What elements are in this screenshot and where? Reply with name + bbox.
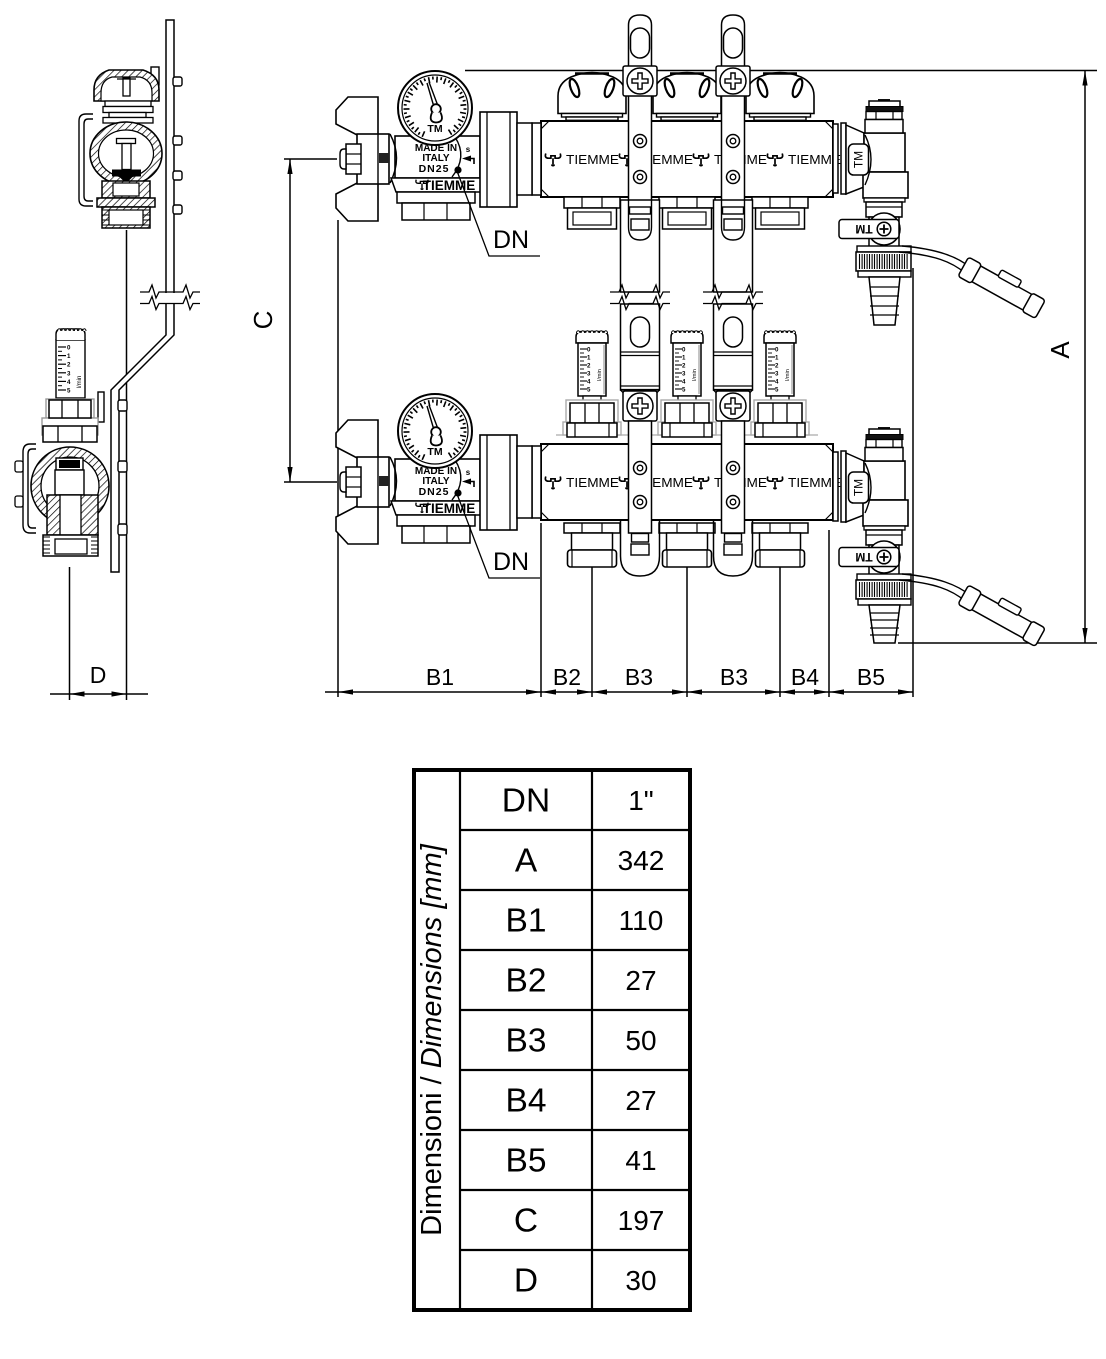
svg-text:4: 4 <box>67 379 71 386</box>
svg-text:0: 0 <box>67 345 71 352</box>
svg-text:Dimensioni / Dimensions [mm]: Dimensioni / Dimensions [mm] <box>416 843 448 1236</box>
svg-text:2: 2 <box>67 362 71 369</box>
svg-text:l/min: l/min <box>785 369 791 381</box>
svg-text:B2: B2 <box>506 963 547 1000</box>
svg-text:DN: DN <box>493 548 529 576</box>
svg-text:TM: TM <box>855 550 872 564</box>
svg-text:TIEMME: TIEMME <box>423 501 476 516</box>
svg-text:l/min: l/min <box>597 369 603 381</box>
svg-text:TM: TM <box>852 479 866 496</box>
svg-text:0: 0 <box>682 347 686 354</box>
svg-text:4: 4 <box>775 379 779 386</box>
svg-text:l/min: l/min <box>692 369 698 381</box>
svg-text:1": 1" <box>628 785 654 816</box>
svg-text:TIEMME: TIEMME <box>423 178 476 193</box>
svg-text:3: 3 <box>67 370 71 377</box>
svg-text:342: 342 <box>618 845 665 876</box>
svg-text:5: 5 <box>67 388 71 395</box>
svg-text:5: 5 <box>587 387 591 394</box>
svg-text:B5: B5 <box>857 664 885 690</box>
svg-text:1: 1 <box>587 355 591 362</box>
svg-text:TM: TM <box>427 123 442 135</box>
svg-text:0: 0 <box>587 347 591 354</box>
svg-text:2: 2 <box>682 363 686 370</box>
svg-text:110: 110 <box>619 905 664 936</box>
svg-text:1: 1 <box>775 355 779 362</box>
svg-text:1: 1 <box>682 355 686 362</box>
svg-text:TM: TM <box>855 222 872 236</box>
svg-text:41: 41 <box>625 1145 656 1176</box>
svg-text:B1: B1 <box>506 903 547 940</box>
svg-text:DN: DN <box>493 226 529 254</box>
svg-text:B2: B2 <box>553 664 581 690</box>
svg-text:3: 3 <box>682 371 686 378</box>
svg-text:5: 5 <box>775 387 779 394</box>
svg-text:B4: B4 <box>791 664 819 690</box>
svg-text:DN: DN <box>502 783 550 820</box>
svg-text:4: 4 <box>587 379 591 386</box>
svg-text:2: 2 <box>587 363 591 370</box>
svg-text:197: 197 <box>618 1205 665 1236</box>
svg-text:C: C <box>514 1203 538 1240</box>
svg-text:TIEMME: TIEMME <box>566 152 619 167</box>
svg-text:B5: B5 <box>506 1143 547 1180</box>
svg-text:0: 0 <box>775 347 779 354</box>
svg-text:TIEMME: TIEMME <box>566 475 619 490</box>
svg-text:4: 4 <box>682 379 686 386</box>
svg-text:s: s <box>466 145 471 154</box>
svg-text:s: s <box>466 468 471 477</box>
svg-text:l/min: l/min <box>77 376 83 389</box>
svg-text:B3: B3 <box>506 1023 547 1060</box>
svg-text:3: 3 <box>775 371 779 378</box>
svg-text:30: 30 <box>625 1265 656 1296</box>
svg-text:A: A <box>515 843 538 880</box>
svg-text:B3: B3 <box>720 664 748 690</box>
svg-text:27: 27 <box>625 1085 656 1116</box>
svg-text:50: 50 <box>625 1025 656 1056</box>
svg-text:2: 2 <box>775 363 779 370</box>
svg-text:C: C <box>248 311 278 330</box>
svg-text:1: 1 <box>67 353 71 360</box>
svg-text:B1: B1 <box>426 664 454 690</box>
svg-text:A: A <box>1045 341 1075 359</box>
svg-text:TM: TM <box>427 446 442 458</box>
svg-text:D: D <box>514 1263 538 1300</box>
svg-text:TM: TM <box>852 151 866 168</box>
svg-text:27: 27 <box>625 965 656 996</box>
svg-text:3: 3 <box>587 371 591 378</box>
svg-text:5: 5 <box>682 387 686 394</box>
svg-text:DN25: DN25 <box>419 486 450 498</box>
svg-text:D: D <box>90 662 107 688</box>
svg-text:B3: B3 <box>625 664 653 690</box>
svg-text:DN25: DN25 <box>419 163 450 175</box>
svg-text:B4: B4 <box>506 1083 547 1120</box>
